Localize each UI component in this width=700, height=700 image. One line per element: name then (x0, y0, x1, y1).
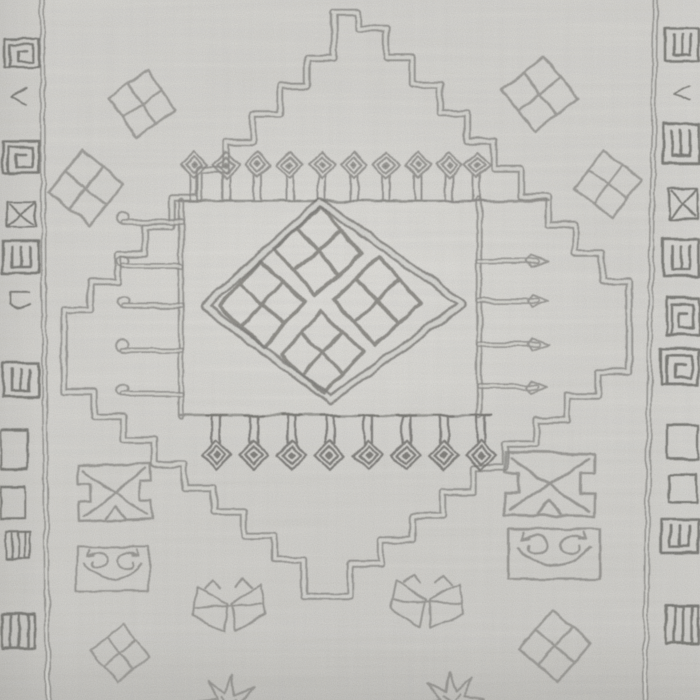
fabric-texture (0, 0, 700, 700)
rug-line-art (0, 0, 700, 700)
rug-photograph: Photograph of a vintage hand-woven Berbe… (0, 0, 700, 700)
